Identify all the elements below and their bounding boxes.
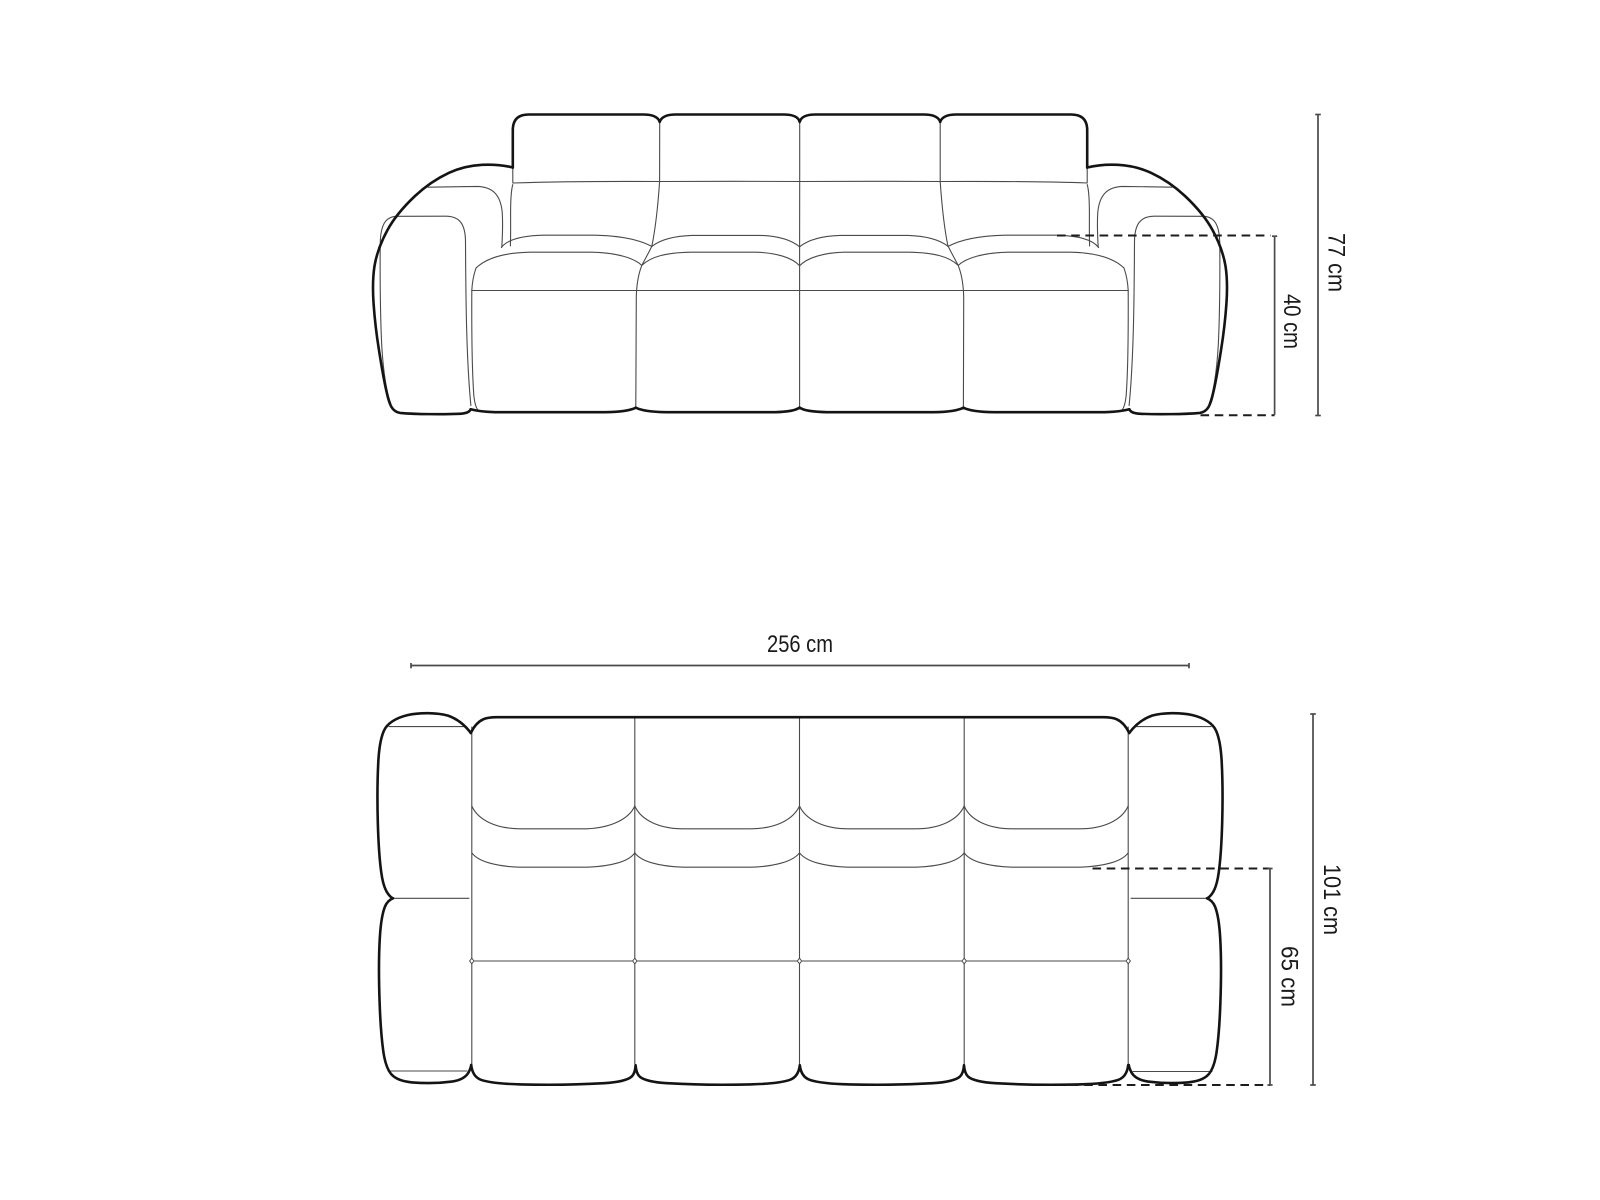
svg-text:101 cm: 101 cm [1318,864,1345,935]
svg-text:40 cm: 40 cm [1278,294,1305,349]
svg-text:256 cm: 256 cm [767,631,833,658]
svg-text:77 cm: 77 cm [1323,233,1350,292]
svg-text:65 cm: 65 cm [1276,946,1303,1007]
